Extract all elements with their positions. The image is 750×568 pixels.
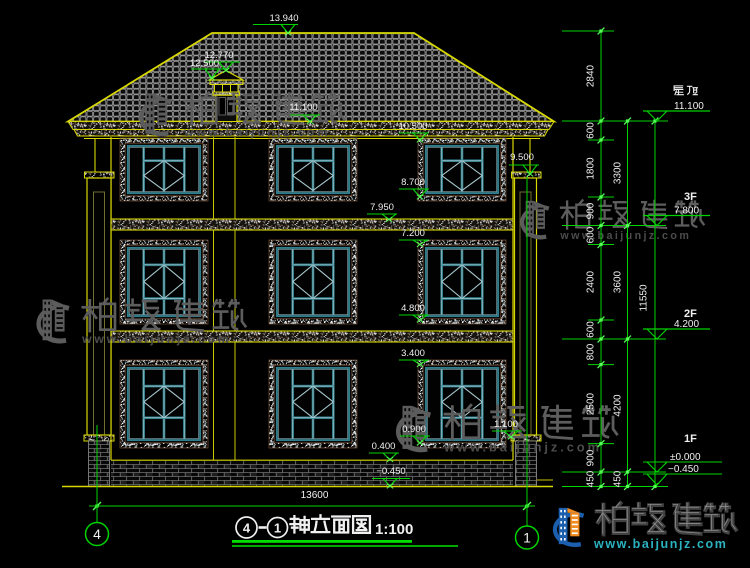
- svg-text:4200: 4200: [613, 394, 624, 417]
- svg-text:−0.450: −0.450: [376, 466, 405, 477]
- svg-text:13.940: 13.940: [269, 13, 298, 24]
- svg-text:1800: 1800: [586, 157, 597, 180]
- svg-text:4: 4: [93, 526, 101, 542]
- svg-text:www.baijunjz.com: www.baijunjz.com: [559, 230, 691, 242]
- svg-text:2840: 2840: [586, 64, 597, 87]
- svg-text:1.100: 1.100: [494, 419, 518, 430]
- svg-text:4.800: 4.800: [401, 303, 425, 314]
- svg-text:2F: 2F: [684, 308, 697, 320]
- svg-text:8.700: 8.700: [401, 177, 425, 188]
- svg-text:600: 600: [586, 226, 597, 243]
- svg-text:900: 900: [586, 449, 597, 466]
- svg-text:2500: 2500: [586, 392, 597, 415]
- svg-text:3F: 3F: [684, 191, 697, 203]
- svg-text:900: 900: [586, 202, 597, 219]
- svg-text:450: 450: [613, 470, 624, 487]
- svg-text:1: 1: [523, 530, 531, 546]
- svg-text:12.500: 12.500: [190, 58, 219, 69]
- svg-text:9.500: 9.500: [510, 152, 534, 163]
- svg-text:600: 600: [586, 122, 597, 139]
- svg-text:3.400: 3.400: [401, 348, 425, 359]
- svg-text:4: 4: [243, 521, 251, 536]
- svg-text:3300: 3300: [613, 161, 624, 184]
- svg-text:600: 600: [586, 321, 597, 338]
- svg-text:7.800: 7.800: [674, 206, 699, 217]
- svg-text:0.900: 0.900: [402, 424, 426, 435]
- svg-text:7.200: 7.200: [401, 228, 425, 239]
- svg-text:www.baijunjz.com: www.baijunjz.com: [593, 537, 727, 551]
- svg-text:11550: 11550: [639, 284, 650, 312]
- svg-text:3600: 3600: [613, 270, 624, 293]
- svg-text:11.100: 11.100: [674, 101, 704, 112]
- svg-text:0.400: 0.400: [372, 441, 396, 452]
- svg-text:1:100: 1:100: [375, 521, 413, 538]
- svg-text:2400: 2400: [586, 270, 597, 293]
- svg-text:800: 800: [586, 343, 597, 360]
- svg-text:10.500: 10.500: [398, 121, 427, 132]
- svg-text:www.baijunjz.com: www.baijunjz.com: [81, 332, 231, 346]
- svg-text:www.baijunjz.com: www.baijunjz.com: [183, 125, 330, 139]
- svg-text:13600: 13600: [301, 490, 329, 501]
- svg-text:4.200: 4.200: [674, 319, 699, 330]
- svg-text:11.100: 11.100: [289, 102, 317, 113]
- svg-text:−0.450: −0.450: [668, 464, 699, 475]
- svg-text:1: 1: [274, 521, 281, 536]
- svg-text:www.baijunjz.com: www.baijunjz.com: [443, 440, 602, 455]
- svg-text:±0.000: ±0.000: [670, 452, 701, 463]
- svg-text:450: 450: [586, 470, 597, 487]
- svg-text:7.950: 7.950: [370, 202, 394, 213]
- svg-text:1F: 1F: [684, 433, 697, 445]
